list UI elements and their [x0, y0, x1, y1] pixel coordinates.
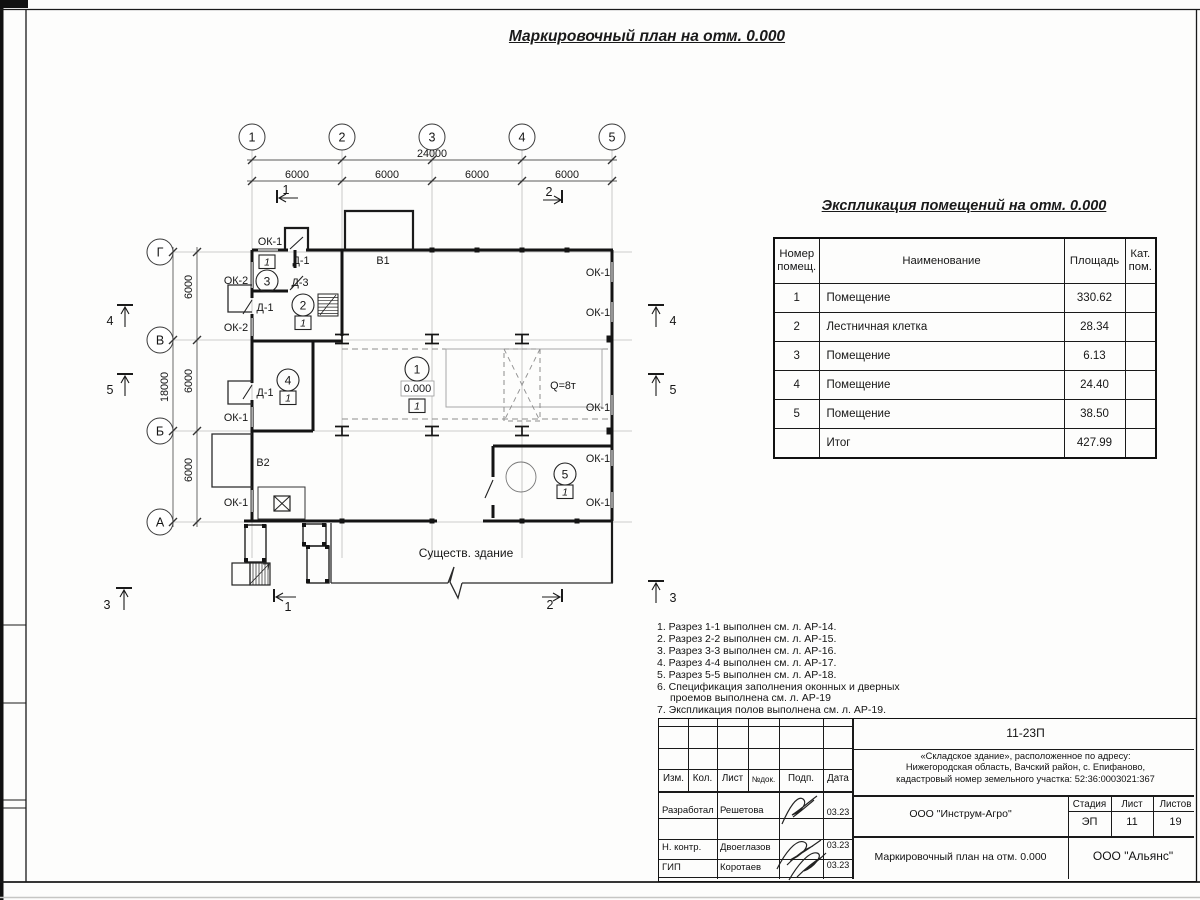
crane-bridge: [446, 349, 602, 407]
note-line: 3. Разрез 3-3 выполнен см. л. АР-16.: [657, 646, 967, 658]
table-cell: [1125, 429, 1156, 459]
plan-text: Д-3: [292, 277, 309, 289]
table-cell: Помещение: [819, 284, 1064, 313]
tb-company: ООО "Альянс": [1068, 849, 1198, 863]
table-cell: Лестничная клетка: [819, 313, 1064, 342]
tb-object-description: «Складское здание», расположенное по адр…: [855, 751, 1196, 785]
plan-text: 6000: [183, 458, 195, 482]
plan-text: 2: [546, 185, 553, 199]
table-cell: 427.99: [1064, 429, 1125, 459]
sheet: { "sheet_title": "Маркировочный план на …: [0, 0, 1200, 900]
note-line: 4. Разрез 4-4 выполнен см. л. АР-17.: [657, 658, 967, 670]
plan-text: ОК-1: [586, 402, 610, 414]
tb-date-0: 03.23: [823, 807, 853, 817]
tb-date-2: 03.23: [823, 860, 853, 870]
table-cell: [1125, 284, 1156, 313]
plan-text: 4: [107, 314, 114, 328]
title-block-line: [717, 719, 718, 879]
tb-name-0: Решетова: [720, 805, 764, 816]
tb-role-1: Н. контр.: [662, 842, 701, 853]
title-block-line: [779, 719, 780, 879]
plan-text: 1: [414, 401, 420, 413]
tb-organization: ООО "Инструм-Агро": [853, 808, 1068, 820]
existing-building-outline: [331, 523, 613, 598]
table-cell: 5: [774, 400, 819, 429]
table-cell: 28.34: [1064, 313, 1125, 342]
tb-sheet-value: 11: [1111, 816, 1153, 828]
plan-text: ОК-2: [224, 322, 248, 334]
plan-text: ОК-1: [586, 497, 610, 509]
section-arrows: [120, 194, 660, 610]
tb-doc-title: Маркировочный план на отм. 0.000: [853, 851, 1068, 863]
title-block-line: [1068, 811, 1194, 812]
tb-sheets-value: 19: [1153, 816, 1198, 828]
sheet-title: Маркировочный план на отм. 0.000: [347, 28, 947, 46]
table-cell: [1125, 342, 1156, 371]
dimension-text: 24000600060006000600018000600060006000: [159, 148, 579, 482]
plan-text: ОК-2: [224, 275, 248, 287]
title-block-line: [853, 795, 1194, 797]
table-cell: 24.40: [1064, 371, 1125, 400]
plan-text: Д-1: [257, 302, 274, 314]
plan-text: А: [156, 516, 165, 530]
table-cell: [1125, 371, 1156, 400]
table-header-row: Номер помещ. Наименование Площадь Кат. п…: [774, 238, 1156, 284]
table-cell: 330.62: [1064, 284, 1125, 313]
plan-text: 5: [670, 383, 677, 397]
table-cell: [1125, 313, 1156, 342]
entrance-stair-treads: [253, 563, 268, 585]
title-block-line: [659, 877, 853, 878]
equipment-cross: [274, 496, 290, 511]
title-block-line: [853, 836, 1194, 838]
plan-text: 0.000: [404, 383, 432, 395]
loading-dock: [245, 525, 266, 562]
tb-name-1: Двоеглазов: [720, 842, 771, 853]
plan-text: 5: [107, 383, 114, 397]
plan-text: 1: [285, 393, 291, 405]
tb-sheet-label: Лист: [1111, 799, 1153, 810]
table-row: 3Помещение6.13: [774, 342, 1156, 371]
tb-name-2: Коротаев: [720, 862, 761, 873]
title-block-line: [853, 749, 1194, 750]
wall-annex: [285, 211, 612, 583]
plan-text: ОК-1: [258, 236, 282, 248]
plan-text: Д-1: [293, 255, 310, 267]
col-header-category: Кат. пом.: [1125, 238, 1156, 284]
plan-text: ОК-1: [224, 412, 248, 424]
tb-stage-label: Стадия: [1068, 799, 1111, 810]
title-block-line: [852, 719, 854, 879]
plan-labels: ОК-1Д-1Д-3ОК-2Д-1ОК-2Д-1ОК-1В2ОК-1В1ОК-1…: [104, 183, 677, 614]
explication-table: Номер помещ. Наименование Площадь Кат. п…: [773, 237, 1157, 459]
tb-header-podp: Подп.: [779, 773, 823, 784]
title-block-line: [659, 818, 853, 819]
plan-text: Существ. здание: [419, 546, 514, 560]
tb-project-code: 11-23П: [853, 726, 1198, 740]
tank-circle: [506, 462, 536, 492]
tb-header-list: Лист: [717, 773, 748, 784]
plan-text: В1: [376, 255, 389, 267]
table-row: Итог427.99: [774, 429, 1156, 459]
tb-header-data: Дата: [823, 773, 853, 784]
plan-text: 4: [670, 314, 677, 328]
plan-text: 3: [264, 274, 271, 288]
plan-text: 6000: [183, 275, 195, 299]
plan-text: ОК-1: [224, 497, 248, 509]
plan-text: 1: [249, 131, 256, 145]
plan-text: 24000: [417, 148, 447, 160]
plan-text: ОК-1: [586, 307, 610, 319]
title-block-line: [659, 839, 853, 840]
title-block-line: [659, 726, 853, 727]
title-block-line: [659, 748, 853, 749]
col-header-number: Номер помещ.: [774, 238, 819, 284]
plan-text: 5: [609, 131, 616, 145]
plan-text: 2: [300, 298, 307, 312]
tb-object-line: Нижегородская область, Вачский район, с.…: [855, 762, 1196, 773]
dock-corner-pads: [244, 523, 329, 583]
plan-text: 6000: [555, 169, 579, 181]
stair-arrow: [320, 295, 336, 315]
plan-text: Д-1: [257, 387, 274, 399]
plan-text: 3: [429, 131, 436, 145]
plan-text: Г: [157, 246, 164, 260]
plan-text: 1: [285, 600, 292, 614]
table-row: 5Помещение38.50: [774, 400, 1156, 429]
col-header-area: Площадь: [1064, 238, 1125, 284]
table-cell: 4: [774, 371, 819, 400]
plan-text: 6000: [183, 369, 195, 393]
title-block-line: [659, 859, 853, 860]
plan-text: 1: [414, 362, 421, 376]
plan-text: 1: [283, 183, 290, 197]
title-block-line: [748, 719, 749, 791]
plan-text: В2: [256, 457, 269, 469]
title-block-line: [1153, 795, 1154, 836]
plan-text: Q=8т: [550, 380, 576, 392]
grid-axes: 12345ГВБА: [147, 124, 632, 558]
plan-text: 2: [547, 598, 554, 612]
table-cell: 38.50: [1064, 400, 1125, 429]
tb-role-2: ГИП: [662, 862, 681, 873]
table-cell: 2: [774, 313, 819, 342]
col-header-name: Наименование: [819, 238, 1064, 284]
table-cell: Итог: [819, 429, 1064, 459]
tb-object-line: «Складское здание», расположенное по адр…: [855, 751, 1196, 762]
margin-stamp-lines: [3, 625, 26, 808]
notes-list: 1. Разрез 1-1 выполнен см. л. АР-14.2. Р…: [657, 622, 967, 717]
table-cell: [774, 429, 819, 459]
table-cell: Помещение: [819, 371, 1064, 400]
plan-text: ОК-1: [586, 453, 610, 465]
frame-corner-block: [0, 0, 28, 8]
plan-text: 3: [104, 598, 111, 612]
plan-details: [232, 294, 536, 585]
table-row: 4Помещение24.40: [774, 371, 1156, 400]
title-block-line: [659, 769, 853, 770]
plan-text: 6000: [375, 169, 399, 181]
tb-header-ndok: №док.: [748, 775, 779, 784]
tb-object-line: кадастровый номер земельного участка: 52…: [855, 774, 1196, 785]
plan-text: 4: [519, 131, 526, 145]
title-block-line: [1111, 795, 1112, 836]
table-cell: 3: [774, 342, 819, 371]
plan-text: 1: [300, 318, 306, 330]
title-block-line: [688, 719, 689, 791]
plan-text: 18000: [159, 372, 171, 402]
plan-text: 6000: [285, 169, 309, 181]
plan-text: В: [156, 334, 164, 348]
title-block: Изм. Кол. Лист №док. Подп. Дата Разработ…: [658, 718, 1197, 882]
loading-dock: [307, 546, 329, 583]
title-block-line: [1068, 795, 1069, 879]
tb-header-izm: Изм.: [659, 773, 688, 784]
title-block-line: [823, 719, 824, 879]
plan-text: 1: [264, 257, 270, 269]
dim-line: [173, 160, 617, 527]
frame-edge-strip: [0, 0, 4, 900]
plan-text: 6000: [465, 169, 489, 181]
title-block-line: [659, 791, 853, 793]
tb-stage-value: ЭП: [1068, 816, 1111, 828]
table-row: 2Лестничная клетка28.34: [774, 313, 1156, 342]
table-cell: 1: [774, 284, 819, 313]
explication-title: Экспликация помещений на отм. 0.000: [773, 198, 1155, 214]
tb-date-1: 03.23: [823, 840, 853, 850]
tb-role-0: Разработал: [662, 805, 714, 816]
plan-text: 3: [670, 591, 677, 605]
plan-text: 2: [339, 131, 346, 145]
table-cell: Помещение: [819, 342, 1064, 371]
door-leaves: [243, 237, 493, 498]
plan-text: 1: [562, 487, 568, 499]
entrance-landing: [232, 563, 250, 585]
porch-outline: [212, 285, 252, 487]
table-cell: [1125, 400, 1156, 429]
tb-header-kol: Кол.: [688, 773, 717, 784]
section-marks: [116, 190, 664, 610]
plan-text: Б: [156, 425, 164, 439]
note-line: 5. Разрез 5-5 выполнен см. л. АР-18.: [657, 670, 967, 682]
table-cell: 6.13: [1064, 342, 1125, 371]
tb-sheets-label: Листов: [1153, 799, 1198, 810]
plan-text: 5: [562, 467, 569, 481]
room-markers: 1121314151: [256, 255, 576, 499]
table-cell: Помещение: [819, 400, 1064, 429]
plan-text: 4: [285, 373, 292, 387]
note-line: 7. Экспликация полов выполнена см. л. АР…: [657, 705, 967, 717]
plan-text: ОК-1: [586, 267, 610, 279]
table-row: 1Помещение330.62: [774, 284, 1156, 313]
